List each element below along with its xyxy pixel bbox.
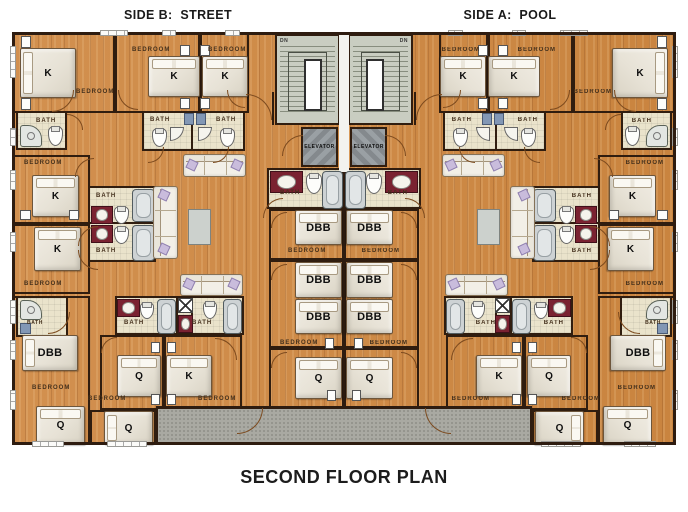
window-marker	[672, 300, 678, 324]
nightstand	[21, 36, 31, 48]
nightstand	[325, 338, 334, 349]
nightstand	[657, 36, 667, 48]
coffee-table	[188, 209, 211, 245]
nightstand	[352, 390, 361, 401]
shower-fixture	[646, 300, 668, 320]
room-label-bedroom: BEDROOM	[32, 385, 70, 391]
nightstand	[327, 390, 336, 401]
bed-double-bunk: DBB	[295, 299, 342, 334]
window-marker	[100, 30, 128, 36]
bathtub-fixture	[512, 299, 531, 334]
nightstand	[512, 342, 521, 353]
bed-king: K	[607, 227, 654, 271]
bed-king: K	[34, 227, 81, 271]
window-marker	[672, 128, 678, 146]
room-label-bedroom: BEDROOM	[88, 396, 126, 402]
nightstand	[20, 210, 31, 220]
sink-counter-blue	[196, 113, 206, 125]
bathtub-fixture	[322, 171, 343, 209]
stair-shaft	[366, 59, 384, 111]
bed-king: K	[488, 56, 540, 97]
door-arc	[246, 94, 272, 120]
stairwell: DN	[275, 34, 340, 125]
bed-queen: Q	[535, 411, 584, 445]
window-marker	[10, 170, 16, 190]
room-label-bedroom: BEDROOM	[626, 281, 664, 287]
bed-double-bunk: DBB	[346, 262, 393, 298]
window-marker	[560, 30, 588, 36]
bathtub-fixture	[223, 299, 242, 334]
door-arc	[605, 114, 621, 130]
window-marker	[10, 128, 16, 146]
nightstand	[528, 394, 537, 405]
window-marker	[10, 390, 16, 410]
bed-queen: Q	[527, 355, 571, 397]
room-label-bath: BATH	[476, 320, 496, 326]
sink-counter	[575, 206, 597, 224]
room-label-bath: BATH	[632, 118, 652, 124]
bed-double-bunk: DBB	[610, 335, 666, 371]
nightstand	[657, 98, 667, 110]
bed-double-bunk: DBB	[22, 335, 78, 371]
room-label-bath: BATH	[572, 248, 592, 254]
nightstand	[21, 98, 31, 110]
room-label-bedroom: BEDROOM	[370, 340, 408, 346]
bed-queen: Q	[117, 355, 161, 397]
door-arc	[385, 135, 406, 156]
window-marker	[10, 300, 16, 324]
elevator: ELEVATOR	[301, 127, 338, 167]
door-arc	[67, 114, 83, 130]
room-label-bath: BATH	[216, 117, 236, 123]
room-label-bedroom: BEDROOM	[132, 47, 170, 53]
stair-gap	[344, 32, 349, 172]
room-label-bedroom: BEDROOM	[452, 396, 490, 402]
sink-counter-blue	[482, 113, 492, 125]
window-marker	[225, 30, 240, 36]
bathtub-fixture	[533, 225, 556, 261]
window-marker	[624, 441, 656, 447]
room-label-bath: BATH	[544, 320, 564, 326]
bed-double-bunk: DBB	[295, 210, 342, 245]
room-label-bath: BATH	[27, 320, 43, 326]
bed-queen: Q	[603, 406, 652, 445]
nightstand	[180, 98, 190, 109]
bed-king: K	[148, 56, 200, 97]
elevator: ELEVATOR	[350, 127, 387, 167]
window-marker	[512, 30, 526, 36]
side-b-title: SIDE B: STREET	[12, 8, 344, 22]
side-a-title: SIDE A: POOL	[344, 8, 676, 22]
stair-down-label: DN	[280, 38, 288, 44]
washer-fixture	[495, 298, 510, 313]
door-arc	[282, 135, 303, 156]
room-label-bedroom: BEDROOM	[562, 396, 600, 402]
bathtub-fixture	[533, 189, 556, 222]
room-label-bath: BATH	[192, 320, 212, 326]
shower-fixture	[646, 125, 668, 147]
room-label-bedroom: BEDROOM	[626, 160, 664, 166]
window-marker	[10, 46, 16, 78]
room-label-bath: BATH	[36, 118, 56, 124]
floor-half-side-b: DN ELEVATOR	[12, 32, 344, 445]
nightstand	[167, 342, 176, 353]
room-label-bath: BATH	[96, 248, 116, 254]
room-label-bedroom: BEDROOM	[24, 281, 62, 287]
nightstand	[151, 342, 160, 353]
building-outline: DN ELEVATOR	[12, 32, 676, 445]
window-marker	[10, 340, 16, 360]
floor-plan-canvas: SIDE B: STREET SIDE A: POOL SECOND FLOOR…	[0, 0, 688, 512]
elevator-label: ELEVATOR	[304, 144, 334, 150]
nightstand	[528, 342, 537, 353]
sink-counter	[117, 299, 140, 317]
room-label-bath: BATH	[572, 193, 592, 199]
window-marker	[672, 232, 678, 252]
plan-title: SECOND FLOOR PLAN	[0, 467, 688, 488]
room-label-bedroom: BEDROOM	[618, 385, 656, 391]
sink-counter-blue	[184, 113, 194, 125]
window-marker	[107, 441, 147, 447]
room-label-bedroom: BEDROOM	[76, 89, 114, 95]
sink-counter	[91, 206, 113, 224]
window-marker	[541, 441, 581, 447]
nightstand	[180, 45, 190, 56]
bed-double-bunk: DBB	[346, 210, 393, 245]
room-label-bedroom: BEDROOM	[288, 248, 326, 254]
window-marker	[32, 441, 64, 447]
floor-half-side-a: DN ELEVATOR	[344, 32, 676, 445]
stair-shaft	[304, 59, 322, 111]
bed-king: K	[166, 355, 212, 397]
window-marker	[448, 30, 463, 36]
door-arc	[524, 147, 540, 163]
room-label-bath: BATH	[280, 190, 300, 196]
sink-counter	[548, 299, 571, 317]
bed-double-bunk: DBB	[346, 299, 393, 334]
window-marker	[672, 46, 678, 78]
window-marker	[10, 232, 16, 252]
nightstand	[478, 98, 488, 109]
window-marker	[672, 170, 678, 190]
nightstand	[354, 338, 363, 349]
nightstand	[151, 394, 160, 405]
nightstand	[498, 45, 508, 56]
door-arc	[148, 147, 164, 163]
bed-double-bunk: DBB	[295, 262, 342, 298]
bed-king: K	[476, 355, 522, 397]
sink-counter	[178, 315, 193, 333]
room-label-bath: BATH	[518, 117, 538, 123]
room-label-bath: BATH	[645, 320, 661, 326]
door-arc	[416, 94, 442, 120]
room-label-bedroom: BEDROOM	[362, 248, 400, 254]
stair-down-label: DN	[400, 38, 408, 44]
room-label-bedroom: BEDROOM	[208, 47, 246, 53]
sink-counter-blue	[494, 113, 504, 125]
nightstand	[200, 98, 210, 109]
nightstand	[498, 98, 508, 109]
room-label-bedroom: BEDROOM	[518, 47, 556, 53]
nightstand	[657, 210, 668, 220]
nightstand	[609, 210, 619, 220]
bathtub-fixture	[446, 299, 465, 334]
room-label-bath: BATH	[452, 117, 472, 123]
room-label-bedroom: BEDROOM	[198, 396, 236, 402]
room-label-bedroom: BEDROOM	[24, 160, 62, 166]
room-label-bath: BATH	[388, 190, 408, 196]
stair-gap	[339, 32, 344, 172]
stairwell: DN	[348, 34, 413, 125]
room-label-bath: BATH	[150, 117, 170, 123]
room-label-bedroom: BEDROOM	[280, 340, 318, 346]
room-label-bedroom: BEDROOM	[574, 89, 612, 95]
window-marker	[162, 30, 176, 36]
bathtub-fixture	[157, 299, 176, 334]
nightstand	[512, 394, 521, 405]
room-label-bedroom: BEDROOM	[442, 47, 480, 53]
window-marker	[672, 390, 678, 410]
window-marker	[672, 340, 678, 360]
bathtub-fixture	[132, 189, 155, 222]
coffee-table	[477, 209, 500, 245]
nightstand	[69, 210, 79, 220]
wall	[414, 92, 416, 125]
nightstand	[167, 394, 176, 405]
bathtub-fixture	[345, 171, 366, 209]
room-label-bath: BATH	[96, 193, 116, 199]
elevator-label: ELEVATOR	[353, 144, 383, 150]
bed-queen: Q	[104, 411, 153, 445]
bathtub-fixture	[132, 225, 155, 261]
washer-fixture	[178, 298, 193, 313]
room-label-bath: BATH	[124, 320, 144, 326]
wall	[272, 92, 274, 125]
bed-queen: Q	[36, 406, 85, 445]
sink-counter	[495, 315, 510, 333]
